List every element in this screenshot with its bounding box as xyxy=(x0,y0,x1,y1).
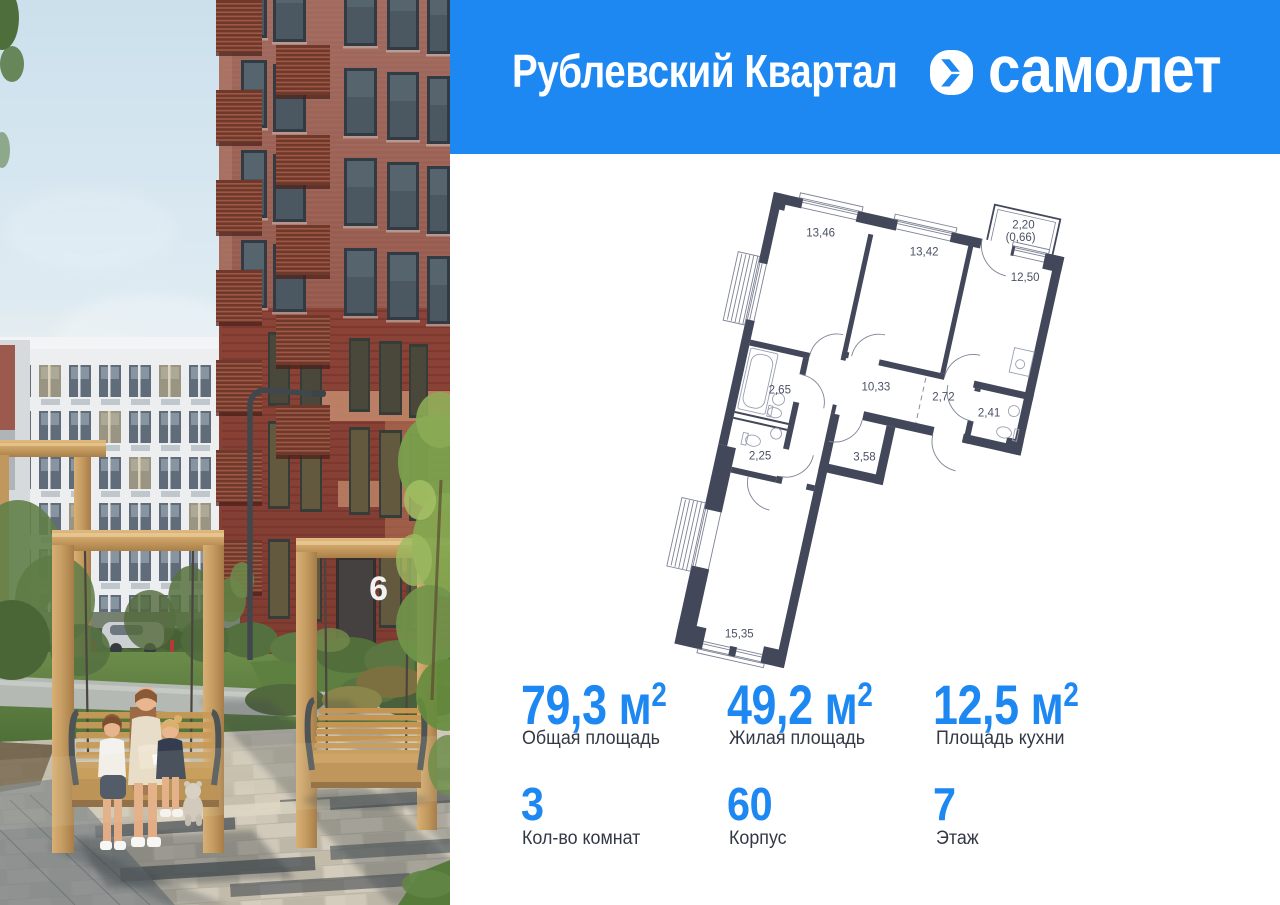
svg-text:13,42: 13,42 xyxy=(910,247,939,259)
svg-text:15,35: 15,35 xyxy=(725,629,754,641)
svg-text:(0,66): (0,66) xyxy=(1006,232,1036,244)
svg-text:2,41: 2,41 xyxy=(978,408,1000,420)
svg-text:2,65: 2,65 xyxy=(769,384,791,396)
svg-text:2,20: 2,20 xyxy=(1012,220,1034,232)
svg-text:2,72: 2,72 xyxy=(932,391,954,403)
svg-text:2,25: 2,25 xyxy=(749,451,771,463)
svg-text:12,50: 12,50 xyxy=(1011,272,1040,284)
svg-text:3,58: 3,58 xyxy=(853,452,875,464)
svg-text:6: 6 xyxy=(369,570,388,608)
svg-text:10,33: 10,33 xyxy=(862,381,891,393)
svg-text:13,46: 13,46 xyxy=(806,227,835,239)
